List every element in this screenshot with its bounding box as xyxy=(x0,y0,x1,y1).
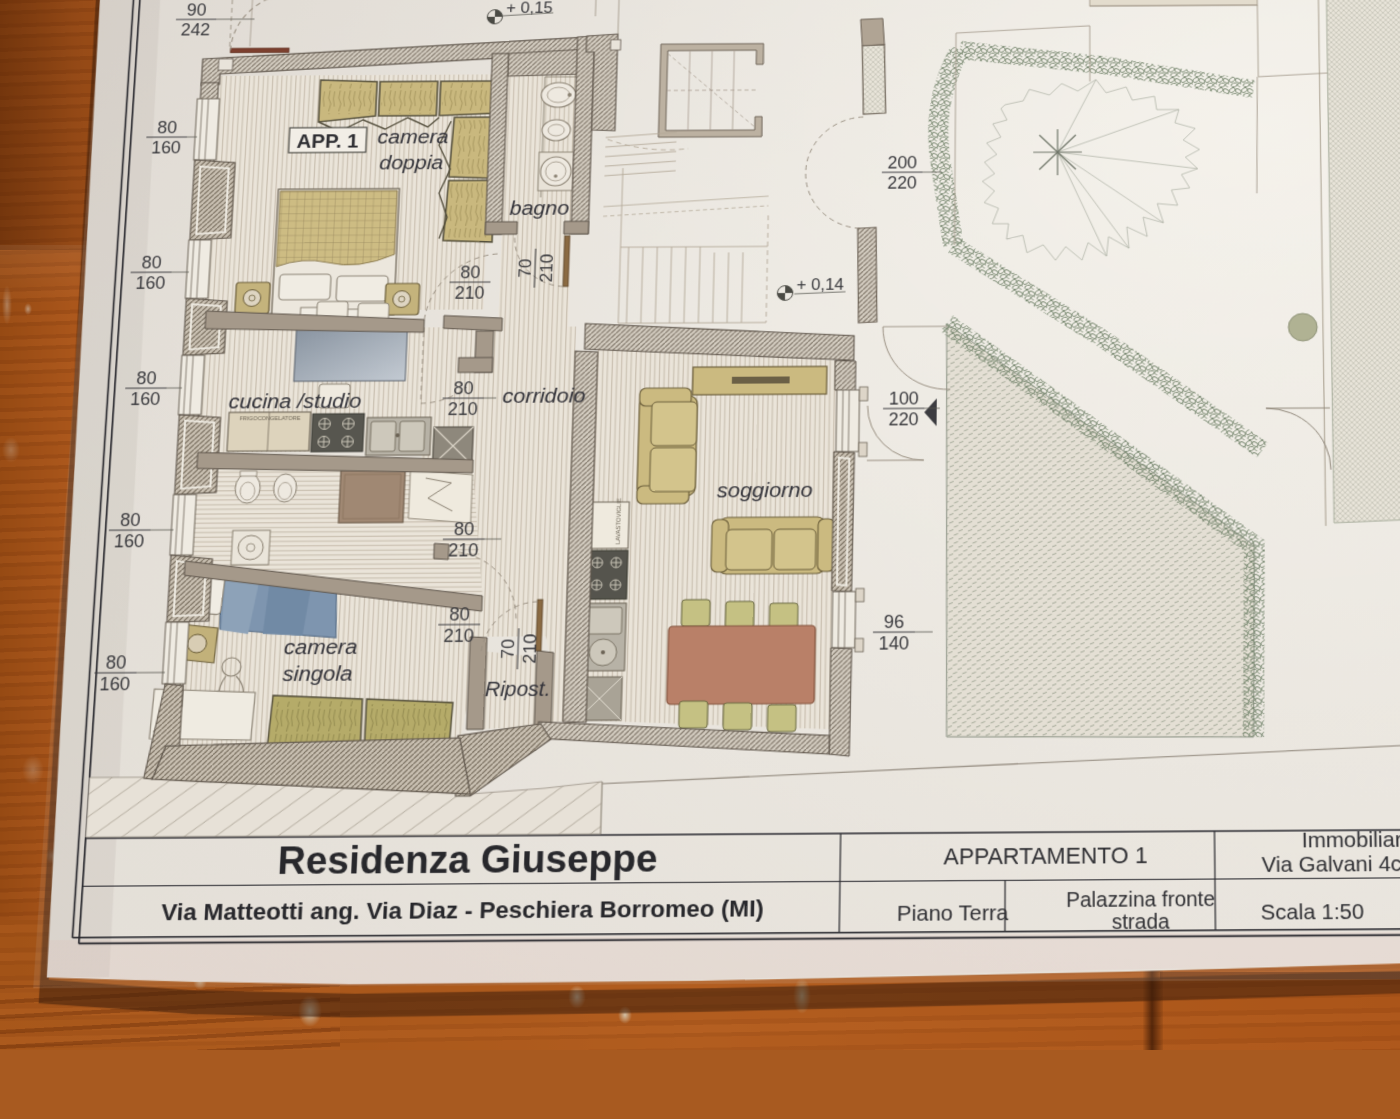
svg-text:80: 80 xyxy=(449,605,470,625)
svg-text:APPARTAMENTO 1: APPARTAMENTO 1 xyxy=(943,844,1147,870)
svg-text:140: 140 xyxy=(878,634,909,654)
svg-text:camera: camera xyxy=(283,635,358,660)
svg-text:210: 210 xyxy=(454,284,485,303)
svg-text:96: 96 xyxy=(884,612,905,632)
svg-text:80: 80 xyxy=(141,253,162,272)
svg-text:80: 80 xyxy=(136,369,157,388)
svg-text:corridoio: corridoio xyxy=(502,384,586,408)
svg-text:Piano Terra: Piano Terra xyxy=(897,902,1010,927)
svg-text:210: 210 xyxy=(519,634,541,664)
svg-text:soggiorno: soggiorno xyxy=(717,478,813,502)
svg-text:70: 70 xyxy=(497,639,518,659)
svg-text:singola: singola xyxy=(282,662,353,687)
svg-text:210: 210 xyxy=(448,541,479,561)
svg-text:Scala 1:50: Scala 1:50 xyxy=(1261,900,1365,925)
svg-text:200: 200 xyxy=(887,154,917,173)
svg-text:160: 160 xyxy=(113,532,145,552)
svg-text:242: 242 xyxy=(180,21,210,40)
svg-text:80: 80 xyxy=(453,379,474,398)
svg-text:LAVASTOVIGLIE: LAVASTOVIGLIE xyxy=(616,498,624,544)
svg-text:camera: camera xyxy=(377,126,449,149)
svg-text:90: 90 xyxy=(186,1,207,19)
svg-text:210: 210 xyxy=(443,626,474,646)
svg-text:doppia: doppia xyxy=(379,151,444,174)
svg-text:80: 80 xyxy=(460,263,481,282)
svg-text:+ 0,14: + 0,14 xyxy=(796,276,844,294)
svg-text:Ripost.: Ripost. xyxy=(485,678,551,702)
svg-text:bagno: bagno xyxy=(509,197,569,220)
svg-text:cucina /studio: cucina /studio xyxy=(228,389,362,413)
svg-text:160: 160 xyxy=(130,390,161,410)
svg-text:100: 100 xyxy=(889,389,919,409)
svg-text:80: 80 xyxy=(157,119,178,138)
svg-text:Immobiliare: Immobiliare xyxy=(1302,828,1400,852)
svg-text:160: 160 xyxy=(151,139,182,158)
svg-text:APP. 1: APP. 1 xyxy=(296,131,359,153)
svg-text:80: 80 xyxy=(120,511,141,531)
svg-text:220: 220 xyxy=(887,174,917,193)
svg-text:210: 210 xyxy=(536,254,557,283)
svg-text:210: 210 xyxy=(447,400,478,420)
svg-text:FRIGOCONGELATORE: FRIGOCONGELATORE xyxy=(239,416,301,422)
svg-text:Palazzina fronte: Palazzina fronte xyxy=(1066,889,1215,913)
svg-text:strada: strada xyxy=(1112,911,1170,934)
svg-text:70: 70 xyxy=(515,259,536,278)
svg-text:Residenza Giuseppe: Residenza Giuseppe xyxy=(277,837,659,883)
svg-text:Via Galvani 4c -: Via Galvani 4c - xyxy=(1261,853,1400,878)
svg-text:160: 160 xyxy=(135,274,166,293)
svg-text:160: 160 xyxy=(99,674,131,694)
svg-text:80: 80 xyxy=(105,653,127,673)
svg-text:Via Matteotti ang. Via Diaz -: Via Matteotti ang. Via Diaz - Peschiera … xyxy=(160,895,764,926)
svg-text:220: 220 xyxy=(888,410,918,430)
svg-text:80: 80 xyxy=(454,520,475,540)
